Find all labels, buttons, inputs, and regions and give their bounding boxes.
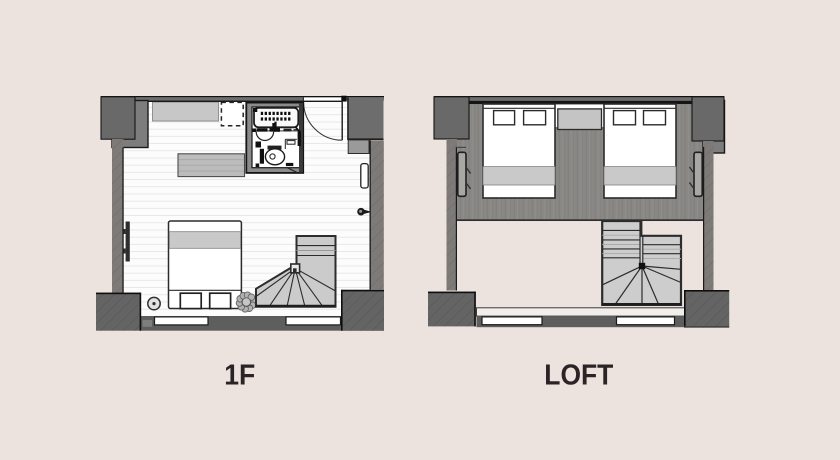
svg-text:1F: 1F: [224, 360, 255, 392]
svg-text:LOFT: LOFT: [544, 360, 613, 392]
